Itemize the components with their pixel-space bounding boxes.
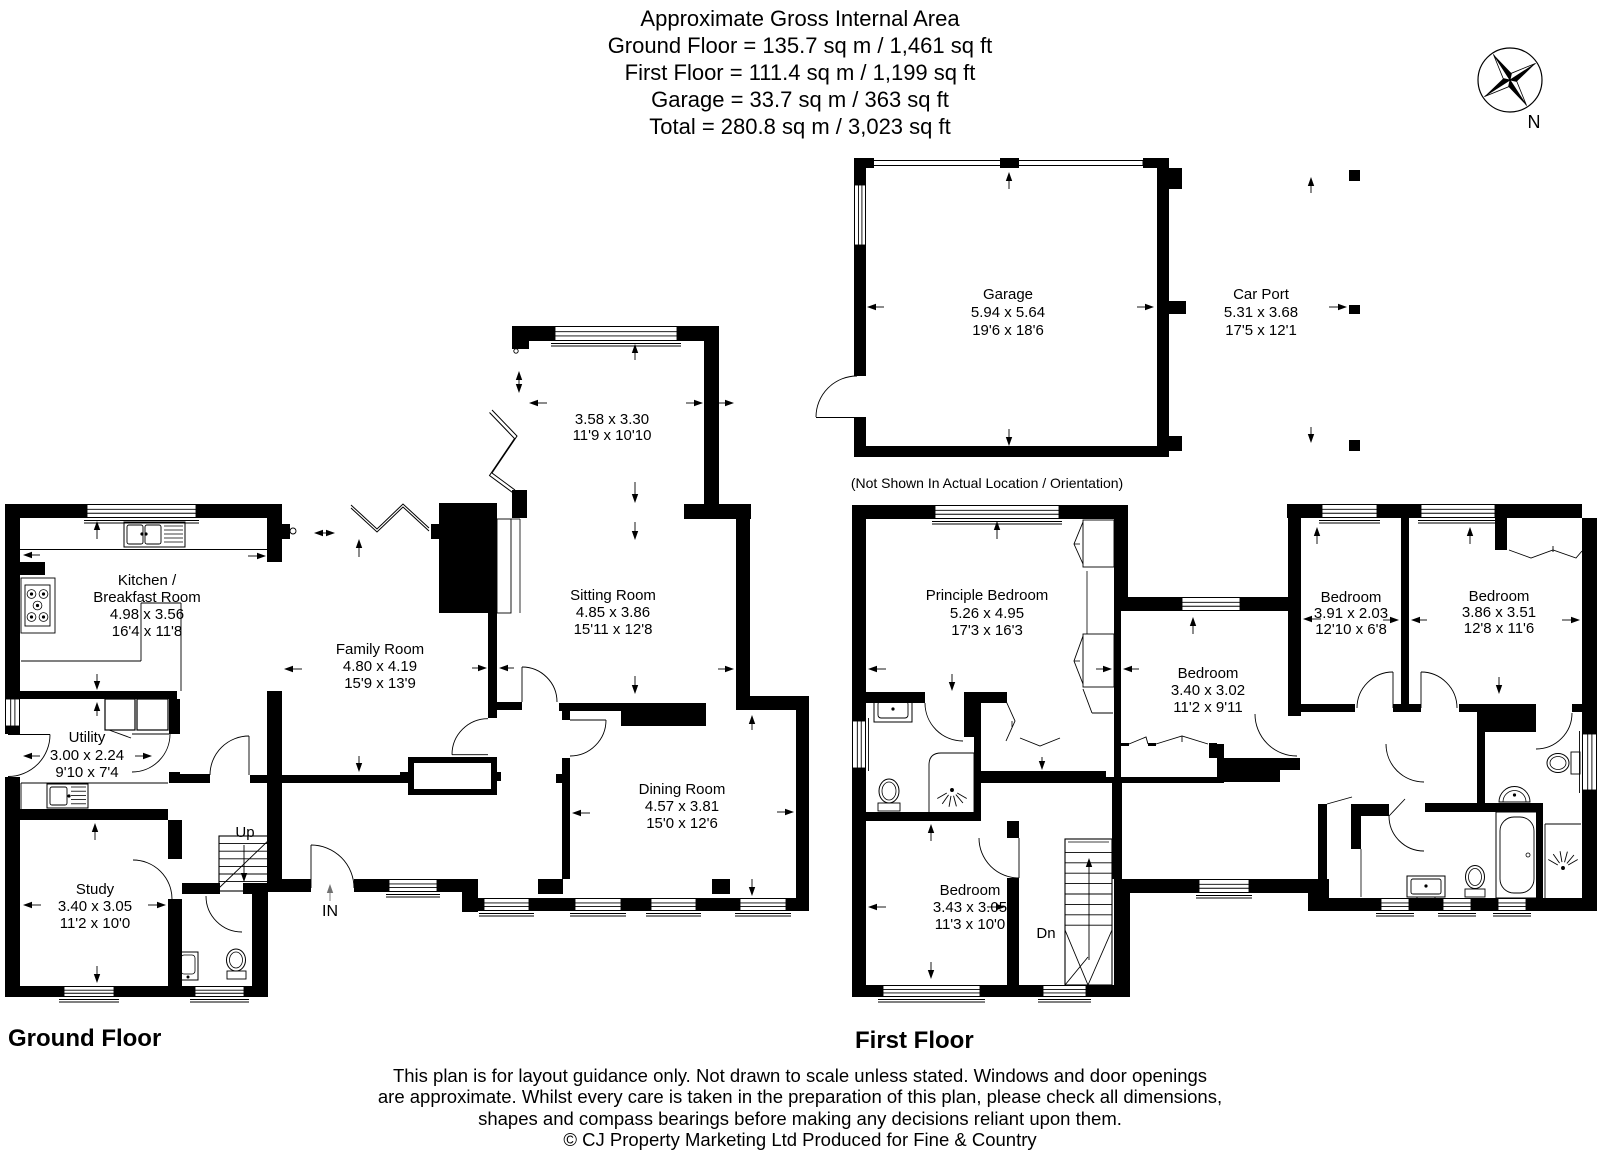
- svg-text:Dining Room: Dining Room: [639, 781, 726, 798]
- svg-text:Total = 280.8 sq m / 3,023 sq: Total = 280.8 sq m / 3,023 sq ft: [649, 114, 950, 139]
- svg-text:15'0 x 12'6: 15'0 x 12'6: [646, 815, 718, 832]
- svg-text:12'10 x 6'8: 12'10 x 6'8: [1315, 621, 1387, 638]
- svg-text:This plan is for layout guidan: This plan is for layout guidance only. N…: [393, 1065, 1207, 1086]
- svg-text:N: N: [1528, 112, 1541, 132]
- svg-text:3.86 x 3.51: 3.86 x 3.51: [1462, 604, 1536, 621]
- svg-text:3.40 x 3.02: 3.40 x 3.02: [1171, 682, 1245, 699]
- svg-text:Bedroom: Bedroom: [1321, 589, 1382, 606]
- svg-text:3.91 x 2.03: 3.91 x 2.03: [1314, 605, 1388, 622]
- svg-text:12'8 x 11'6: 12'8 x 11'6: [1464, 620, 1535, 637]
- svg-text:Breakfast Room: Breakfast Room: [93, 589, 201, 606]
- svg-text:Bedroom: Bedroom: [1469, 588, 1530, 605]
- svg-text:Kitchen /: Kitchen /: [118, 572, 177, 589]
- svg-text:Principle Bedroom: Principle Bedroom: [926, 587, 1049, 604]
- svg-text:5.26 x 4.95: 5.26 x 4.95: [950, 605, 1024, 622]
- svg-text:15'11 x 12'8: 15'11 x 12'8: [574, 621, 653, 638]
- svg-text:Study: Study: [76, 881, 115, 898]
- svg-text:First Floor: First Floor: [855, 1027, 974, 1054]
- svg-text:11'2 x 10'0: 11'2 x 10'0: [60, 915, 131, 932]
- svg-text:16'4 x 11'8: 16'4 x 11'8: [112, 623, 183, 640]
- svg-text:3.00 x 2.24: 3.00 x 2.24: [50, 747, 124, 764]
- svg-text:Approximate Gross Internal Are: Approximate Gross Internal Area: [640, 6, 960, 31]
- svg-text:Car Port: Car Port: [1233, 286, 1290, 303]
- svg-text:Utility: Utility: [69, 729, 106, 746]
- svg-text:19'6 x 18'6: 19'6 x 18'6: [972, 322, 1044, 339]
- svg-text:© CJ Property Marketing Ltd Pr: © CJ Property Marketing Ltd Produced for…: [563, 1129, 1037, 1150]
- svg-text:4.85 x 3.86: 4.85 x 3.86: [576, 604, 650, 621]
- svg-text:11'9 x 10'10: 11'9 x 10'10: [573, 427, 652, 444]
- svg-text:Dn: Dn: [1036, 925, 1055, 942]
- svg-text:are approximate. Whilst every: are approximate. Whilst every care is ta…: [378, 1086, 1222, 1107]
- svg-text:Bedroom: Bedroom: [1178, 665, 1239, 682]
- svg-text:17'3 x 16'3: 17'3 x 16'3: [951, 622, 1023, 639]
- svg-text:First Floor = 111.4 sq m / 1,1: First Floor = 111.4 sq m / 1,199 sq ft: [625, 60, 976, 85]
- svg-text:15'9 x 13'9: 15'9 x 13'9: [344, 675, 416, 692]
- svg-text:4.98 x 3.56: 4.98 x 3.56: [110, 606, 184, 623]
- svg-text:Ground Floor = 135.7 sq m / 1,: Ground Floor = 135.7 sq m / 1,461 sq ft: [608, 33, 993, 58]
- svg-text:Garage: Garage: [983, 286, 1033, 303]
- svg-text:(Not Shown In Actual Location: (Not Shown In Actual Location / Orientat…: [851, 475, 1123, 491]
- svg-text:Garage = 33.7 sq m / 363 sq ft: Garage = 33.7 sq m / 363 sq ft: [651, 87, 949, 112]
- svg-text:17'5 x 12'1: 17'5 x 12'1: [1225, 322, 1297, 339]
- svg-text:Ground Floor: Ground Floor: [8, 1025, 161, 1052]
- svg-text:3.43 x 3.05: 3.43 x 3.05: [933, 899, 1007, 916]
- svg-text:Up: Up: [235, 824, 254, 841]
- svg-text:IN: IN: [322, 903, 338, 920]
- svg-text:5.31 x 3.68: 5.31 x 3.68: [1224, 304, 1298, 321]
- svg-text:Bedroom: Bedroom: [940, 882, 1001, 899]
- svg-text:4.80 x 4.19: 4.80 x 4.19: [343, 658, 417, 675]
- svg-text:9'10 x 7'4: 9'10 x 7'4: [55, 764, 118, 781]
- svg-text:11'3 x 10'0: 11'3 x 10'0: [935, 916, 1006, 933]
- svg-text:5.94 x 5.64: 5.94 x 5.64: [971, 304, 1045, 321]
- svg-text:4.57 x 3.81: 4.57 x 3.81: [645, 798, 719, 815]
- svg-text:shapes and compass bearings be: shapes and compass bearings before makin…: [478, 1108, 1122, 1129]
- svg-text:Sitting Room: Sitting Room: [570, 587, 656, 604]
- svg-text:3.40 x 3.05: 3.40 x 3.05: [58, 898, 132, 915]
- svg-text:Family Room: Family Room: [336, 641, 424, 658]
- svg-text:11'2 x 9'11: 11'2 x 9'11: [1173, 699, 1242, 716]
- svg-text:3.58 x 3.30: 3.58 x 3.30: [575, 411, 649, 428]
